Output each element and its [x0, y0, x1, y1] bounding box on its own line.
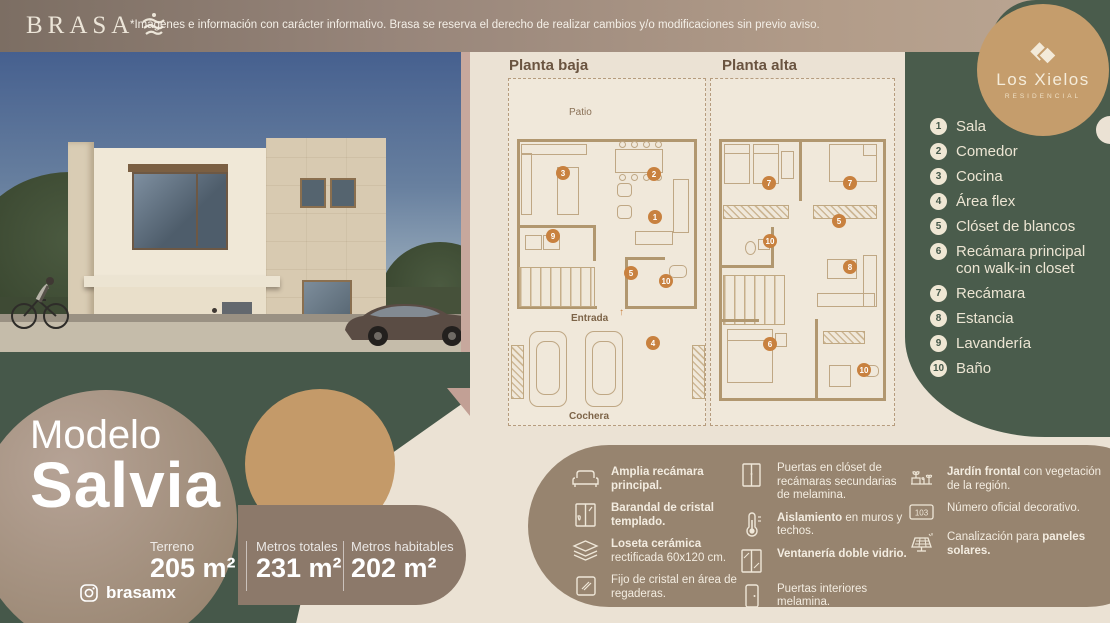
stat-totales: Metros totales 231 m²: [256, 539, 342, 582]
cochera-label: Cochera: [569, 411, 609, 422]
legend-num: 5: [930, 218, 947, 235]
stat-terreno: Terreno 205 m²: [150, 539, 236, 582]
photo-edge-strip: [461, 52, 470, 352]
feature-item: Jardín frontal con vegetación de la regi…: [908, 466, 1108, 493]
stat-habitables: Metros habitables 202 m²: [351, 539, 454, 582]
interior-door-icon: [738, 583, 765, 609]
stat-divider: [343, 541, 344, 591]
legend-item: 1Sala: [930, 118, 1102, 135]
legend-num: 1: [930, 118, 947, 135]
room-legend: 1Sala 2Comedor 3Cocina 4Área flex 5Clóse…: [930, 118, 1102, 377]
room-badge: 10: [763, 234, 777, 248]
legend-num: 6: [930, 243, 947, 260]
legend-num: 10: [930, 360, 947, 377]
room-badge: 10: [659, 274, 673, 288]
room-badge: 10: [857, 363, 871, 377]
instagram-link[interactable]: brasamx: [80, 583, 176, 603]
features-col-1: Amplia recámara principal. Barandal de c…: [572, 466, 740, 601]
features-col-2: Puertas en clóset de recámaras secundari…: [738, 462, 910, 610]
xielos-name: Los Xielos: [996, 70, 1089, 90]
legend-item: 9Lavandería: [930, 335, 1102, 352]
xielos-diamond-icon: [1026, 41, 1060, 67]
entrada-label: Entrada: [571, 313, 608, 324]
feature-item: 103 Número oficial decorativo.: [908, 502, 1108, 522]
feature-item: Loseta cerámica rectificada 60x120 cm.: [572, 538, 740, 565]
room-badge: 7: [762, 176, 776, 190]
legend-num: 3: [930, 168, 947, 185]
garden-icon: [908, 466, 935, 490]
feature-item: Puertas interiores melamina.: [738, 583, 910, 610]
solar-panel-icon: [908, 531, 935, 555]
legend-item: 2Comedor: [930, 143, 1102, 160]
patio-label: Patio: [569, 107, 592, 118]
feature-item: Canalización para paneles solares.: [908, 531, 1108, 558]
feature-item: Barandal de cristal templado.: [572, 502, 740, 529]
legend-num: 7: [930, 285, 947, 302]
closet-doors-icon: [738, 462, 765, 488]
glass-panel-icon: [572, 574, 599, 598]
feature-item: Aislamiento en muros y techos.: [738, 512, 910, 539]
ceramic-tiles-icon: [572, 538, 599, 562]
main-window-header: [128, 164, 228, 172]
features-col-3: Jardín frontal con vegetación de la regi…: [908, 466, 1108, 558]
room-badge: 5: [624, 266, 638, 280]
legend-item: 3Cocina: [930, 168, 1102, 185]
los-xielos-badge: Los Xielos RESIDENCIAL: [977, 4, 1109, 136]
legend-num: 8: [930, 310, 947, 327]
svg-text:103: 103: [915, 509, 929, 518]
plan-title-baja: Planta baja: [509, 57, 588, 74]
xielos-subtitle: RESIDENCIAL: [1005, 93, 1081, 100]
sofa-icon: [572, 466, 599, 490]
room-badge: 8: [843, 260, 857, 274]
legend-num: 4: [930, 193, 947, 210]
legend-item: 7Recámara: [930, 285, 1102, 302]
legend-item: 4Área flex: [930, 193, 1102, 210]
plan-title-alta: Planta alta: [722, 57, 797, 74]
canopy: [84, 276, 280, 287]
instagram-handle: brasamx: [106, 583, 176, 603]
room-badge: 5: [832, 214, 846, 228]
house-photo: [0, 52, 470, 352]
main-window-divider: [196, 172, 198, 246]
legend-item: 10Baño: [930, 360, 1102, 377]
tower-window-1: [300, 178, 326, 208]
main-window: [132, 172, 228, 250]
legend-item: 8Estancia: [930, 310, 1102, 327]
stat-divider: [246, 541, 247, 591]
room-badge: 1: [648, 210, 662, 224]
flyer-canvas: BRASA *Imágenes e información con caráct…: [0, 0, 1110, 623]
legend-item: 5Clóset de blancos: [930, 218, 1102, 235]
legend-item: 6Recámara principal con walk-in closet: [930, 243, 1102, 277]
car: [340, 288, 470, 348]
plan-baja: Patio Entrada ↑: [508, 78, 706, 426]
room-badge: 7: [843, 176, 857, 190]
disclaimer-text: *Imágenes e información con carácter inf…: [130, 19, 820, 31]
thermometer-icon: [738, 512, 765, 538]
room-badge: 3: [556, 166, 570, 180]
room-badge: 4: [646, 336, 660, 350]
entrada-arrow: ↑: [619, 307, 624, 318]
model-name: Salvia: [30, 456, 221, 514]
brasa-wordmark: BRASA: [26, 12, 134, 40]
feature-item: Ventanería doble vidrio.: [738, 548, 910, 574]
legend-num: 9: [930, 335, 947, 352]
feature-item: Puertas en clóset de recámaras secundari…: [738, 462, 910, 503]
legend-num: 2: [930, 143, 947, 160]
glass-railing-icon: [572, 502, 599, 528]
house-number-icon: 103: [908, 502, 935, 522]
feature-item: Amplia recámara principal.: [572, 466, 740, 493]
cyclist: [8, 266, 72, 332]
instagram-icon: [80, 584, 98, 602]
tower-window-2: [330, 178, 356, 208]
feature-item: Fijo de cristal en área de regaderas.: [572, 574, 740, 601]
top-bar: BRASA *Imágenes e información con caráct…: [0, 0, 1110, 52]
model-title: Modelo Salvia: [30, 414, 221, 514]
double-window-icon: [738, 548, 765, 574]
room-badge: 6: [763, 337, 777, 351]
room-badge: 2: [647, 167, 661, 181]
room-badge: 9: [546, 229, 560, 243]
